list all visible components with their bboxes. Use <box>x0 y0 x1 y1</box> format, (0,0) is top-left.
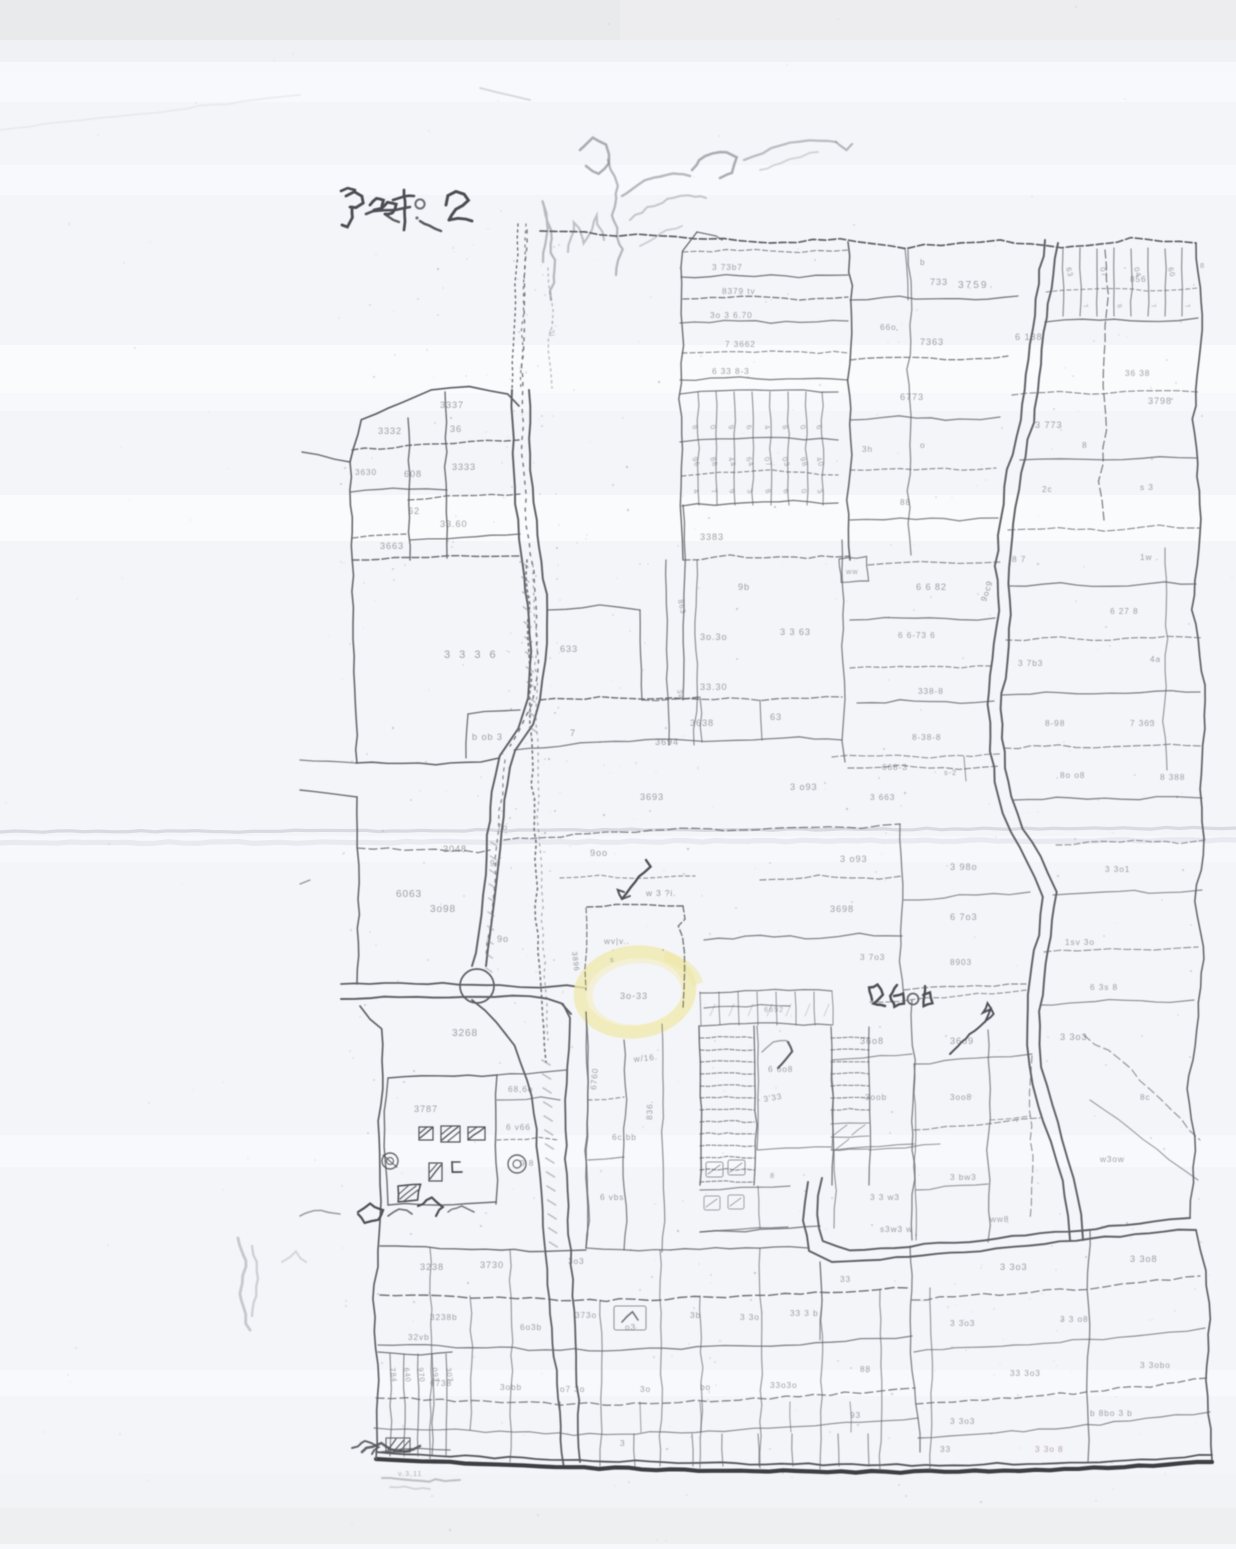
svg-text:3332: 3332 <box>378 426 402 436</box>
svg-text:36: 36 <box>450 424 462 434</box>
svg-text:3 o93: 3 o93 <box>790 782 818 792</box>
svg-text:6 27 8: 6 27 8 <box>1110 606 1138 616</box>
svg-text:3238b: 3238b <box>430 1312 458 1322</box>
svg-text:8: 8 <box>1082 440 1088 450</box>
svg-text:608: 608 <box>404 469 422 479</box>
svg-text:633: 633 <box>560 644 578 654</box>
svg-text:836.: 836. <box>644 1100 655 1120</box>
svg-text:3o.3o: 3o.3o <box>700 632 728 642</box>
svg-text:3o3: 3o3 <box>568 1256 585 1266</box>
svg-text:3 3o3: 3 3o3 <box>950 1318 975 1328</box>
svg-text:s3w3 w: s3w3 w <box>880 1224 913 1234</box>
svg-text:3698: 3698 <box>830 904 854 914</box>
svg-text:6 v66: 6 v66 <box>506 1122 531 1132</box>
svg-text:b 8bo 3 b: b 8bo 3 b <box>1090 1408 1133 1418</box>
svg-text:3obb: 3obb <box>500 1382 522 1392</box>
svg-text:33 3o3: 33 3o3 <box>1010 1368 1041 1378</box>
svg-text:3238: 3238 <box>420 1262 444 1272</box>
svg-text:3h: 3h <box>862 444 873 454</box>
svg-text:3: 3 <box>620 1438 626 1448</box>
svg-text:3268: 3268 <box>452 1028 478 1039</box>
svg-text:3 3o: 3 3o <box>740 1312 760 1322</box>
svg-text:62: 62 <box>408 506 420 516</box>
svg-text:7 3662: 7 3662 <box>725 339 756 349</box>
svg-text:36o9: 36o9 <box>950 1036 974 1046</box>
svg-text:3693: 3693 <box>640 792 664 802</box>
svg-text:3 3o8: 3 3o8 <box>1130 1254 1158 1264</box>
svg-text:63: 63 <box>770 712 782 722</box>
svg-text:8o o8: 8o o8 <box>1060 770 1085 780</box>
svg-text:6 138: 6 138 <box>1015 332 1043 342</box>
svg-text:68,6o: 68,6o <box>508 1084 533 1094</box>
svg-text:6760: 6760 <box>588 1067 600 1090</box>
svg-text:6c,bb: 6c,bb <box>612 1132 637 1142</box>
svg-text:8-98: 8-98 <box>1045 718 1065 728</box>
svg-text:3 73b7: 3 73b7 <box>712 262 743 272</box>
svg-text:w 3 ?i.: w 3 ?i. <box>645 888 676 898</box>
svg-text:8: 8 <box>1200 261 1205 270</box>
svg-text:3759: 3759 <box>958 280 988 291</box>
svg-text:3 7b3: 3 7b3 <box>1018 658 1043 668</box>
svg-text:3 663: 3 663 <box>870 792 895 802</box>
svg-text:7 363: 7 363 <box>1130 718 1155 728</box>
svg-text:3048: 3048 <box>443 844 467 854</box>
svg-text:3383: 3383 <box>700 532 724 542</box>
svg-text:s-2: s-2 <box>944 768 957 777</box>
svg-text:3333: 3333 <box>452 462 476 472</box>
svg-text:7363: 7363 <box>920 337 944 347</box>
svg-text:8c: 8c <box>1140 1092 1151 1102</box>
svg-text:66o: 66o <box>880 322 897 332</box>
svg-text:32vb: 32vb <box>408 1332 430 1342</box>
svg-text:3b: 3b <box>690 1310 701 1320</box>
svg-text:3 3o1: 3 3o1 <box>1105 864 1130 874</box>
svg-text:36o8: 36o8 <box>860 1036 884 1046</box>
svg-text:856: 856 <box>1130 274 1147 284</box>
svg-text:3663: 3663 <box>380 541 404 551</box>
svg-text:3 3 w3: 3 3 w3 <box>870 1192 900 1202</box>
svg-text:3o 3 6.70: 3o 3 6.70 <box>710 310 753 320</box>
svg-text:6063: 6063 <box>396 889 422 900</box>
svg-text:3oob: 3oob <box>865 1092 887 1102</box>
svg-text:3730: 3730 <box>480 1260 504 1270</box>
svg-text:3 3 o8: 3 3 o8 <box>1060 1314 1088 1324</box>
svg-text:8903: 8903 <box>950 957 972 967</box>
svg-text:33o3o: 33o3o <box>770 1380 798 1390</box>
svg-text:2c: 2c <box>1042 484 1053 494</box>
svg-text:3 3obo: 3 3obo <box>1140 1360 1171 1370</box>
svg-text:bo: bo <box>700 1382 711 1392</box>
svg-text:338-8: 338-8 <box>918 686 944 696</box>
svg-text:w3ow: w3ow <box>1099 1154 1125 1164</box>
svg-text:3337: 3337 <box>440 400 464 410</box>
svg-text:1sv 3o: 1sv 3o <box>1065 937 1095 947</box>
svg-text:8 7: 8 7 <box>1012 554 1026 564</box>
svg-text:3798: 3798 <box>1148 396 1172 406</box>
svg-text:8 388: 8 388 <box>1160 772 1185 782</box>
svg-text:o: o <box>920 440 926 450</box>
svg-text:b ob 3: b ob 3 <box>472 732 503 742</box>
svg-text:88: 88 <box>900 497 911 507</box>
svg-text:3787: 3787 <box>414 1104 438 1114</box>
svg-text:6 vbs: 6 vbs <box>600 1192 624 1202</box>
svg-text:3 bw3: 3 bw3 <box>950 1172 977 1182</box>
svg-text:6 6o8: 6 6o8 <box>768 1064 793 1074</box>
svg-text:88: 88 <box>860 1364 871 1374</box>
svg-text:9o: 9o <box>497 934 509 944</box>
svg-text:36 38: 36 38 <box>1125 368 1150 378</box>
svg-text:7o: 7o <box>497 822 508 832</box>
svg-text:33.30: 33.30 <box>700 682 728 692</box>
svg-text:33: 33 <box>940 1444 951 1454</box>
svg-text:v.3,11: v.3,11 <box>398 1469 422 1478</box>
svg-text:3o: 3o <box>640 1384 651 1394</box>
svg-text:4a: 4a <box>1150 654 1161 664</box>
svg-text:3 3o 8: 3 3o 8 <box>1035 1444 1063 1454</box>
svg-text:6 6 82: 6 6 82 <box>916 582 947 592</box>
svg-text:373o: 373o <box>575 1310 597 1320</box>
svg-text:6773: 6773 <box>900 392 924 402</box>
svg-text:3 3 63: 3 3 63 <box>780 627 811 637</box>
svg-text:3 773: 3 773 <box>1035 420 1063 430</box>
svg-text:3 7o3: 3 7o3 <box>860 952 885 962</box>
svg-text:8: 8 <box>770 1171 775 1180</box>
svg-text:ww8: ww8 <box>989 1214 1009 1224</box>
svg-text:3o-33: 3o-33 <box>620 991 648 1001</box>
svg-text:6 3s 8: 6 3s 8 <box>1090 982 1118 992</box>
svg-text:1w .: 1w . <box>1140 552 1159 562</box>
svg-text:9 8: 9 8 <box>520 1158 534 1168</box>
svg-text:33.60: 33.60 <box>440 519 468 529</box>
svg-text:33 3 b: 33 3 b <box>790 1308 818 1318</box>
svg-text:s: s <box>610 955 615 964</box>
svg-text:6o3b: 6o3b <box>520 1322 542 1332</box>
svg-text:3i: 3i <box>547 329 557 338</box>
svg-text:9b: 9b <box>738 582 750 592</box>
svg-text:3 o93: 3 o93 <box>840 854 868 864</box>
svg-text:8-38-8: 8-38-8 <box>912 732 941 742</box>
svg-text:3o98: 3o98 <box>430 904 456 915</box>
svg-text:9o: 9o <box>490 858 501 868</box>
svg-text:3 3o3: 3 3o3 <box>950 1416 975 1426</box>
svg-text:3 3o3: 3 3o3 <box>1000 1262 1028 1272</box>
svg-text:9oo: 9oo <box>590 848 608 858</box>
svg-text:668-3: 668-3 <box>882 762 908 772</box>
svg-text:3630: 3630 <box>355 467 377 477</box>
svg-text:b: b <box>920 257 926 267</box>
svg-text:8379 tv: 8379 tv <box>722 286 756 296</box>
svg-text:o7 3o: o7 3o <box>560 1384 585 1394</box>
svg-text:3oo8: 3oo8 <box>950 1092 972 1102</box>
svg-text:s 3: s 3 <box>1140 482 1154 492</box>
svg-text:6 7o3: 6 7o3 <box>950 912 978 922</box>
svg-text:wv|v..: wv|v.. <box>603 936 630 946</box>
svg-text:3 98o: 3 98o <box>950 862 978 872</box>
svg-text:6 33 8-3: 6 33 8-3 <box>712 366 750 376</box>
svg-text:33: 33 <box>840 1274 851 1284</box>
svg-text:3 3 3 6: 3 3 3 6 <box>444 649 499 661</box>
svg-text:6 6-73 6: 6 6-73 6 <box>898 630 936 640</box>
svg-text:7: 7 <box>570 728 576 738</box>
svg-text:3 3o3: 3 3o3 <box>1060 1032 1088 1042</box>
svg-text:733: 733 <box>930 277 948 287</box>
svg-text:3638: 3638 <box>690 718 714 728</box>
svg-text:ww: ww <box>845 567 858 576</box>
